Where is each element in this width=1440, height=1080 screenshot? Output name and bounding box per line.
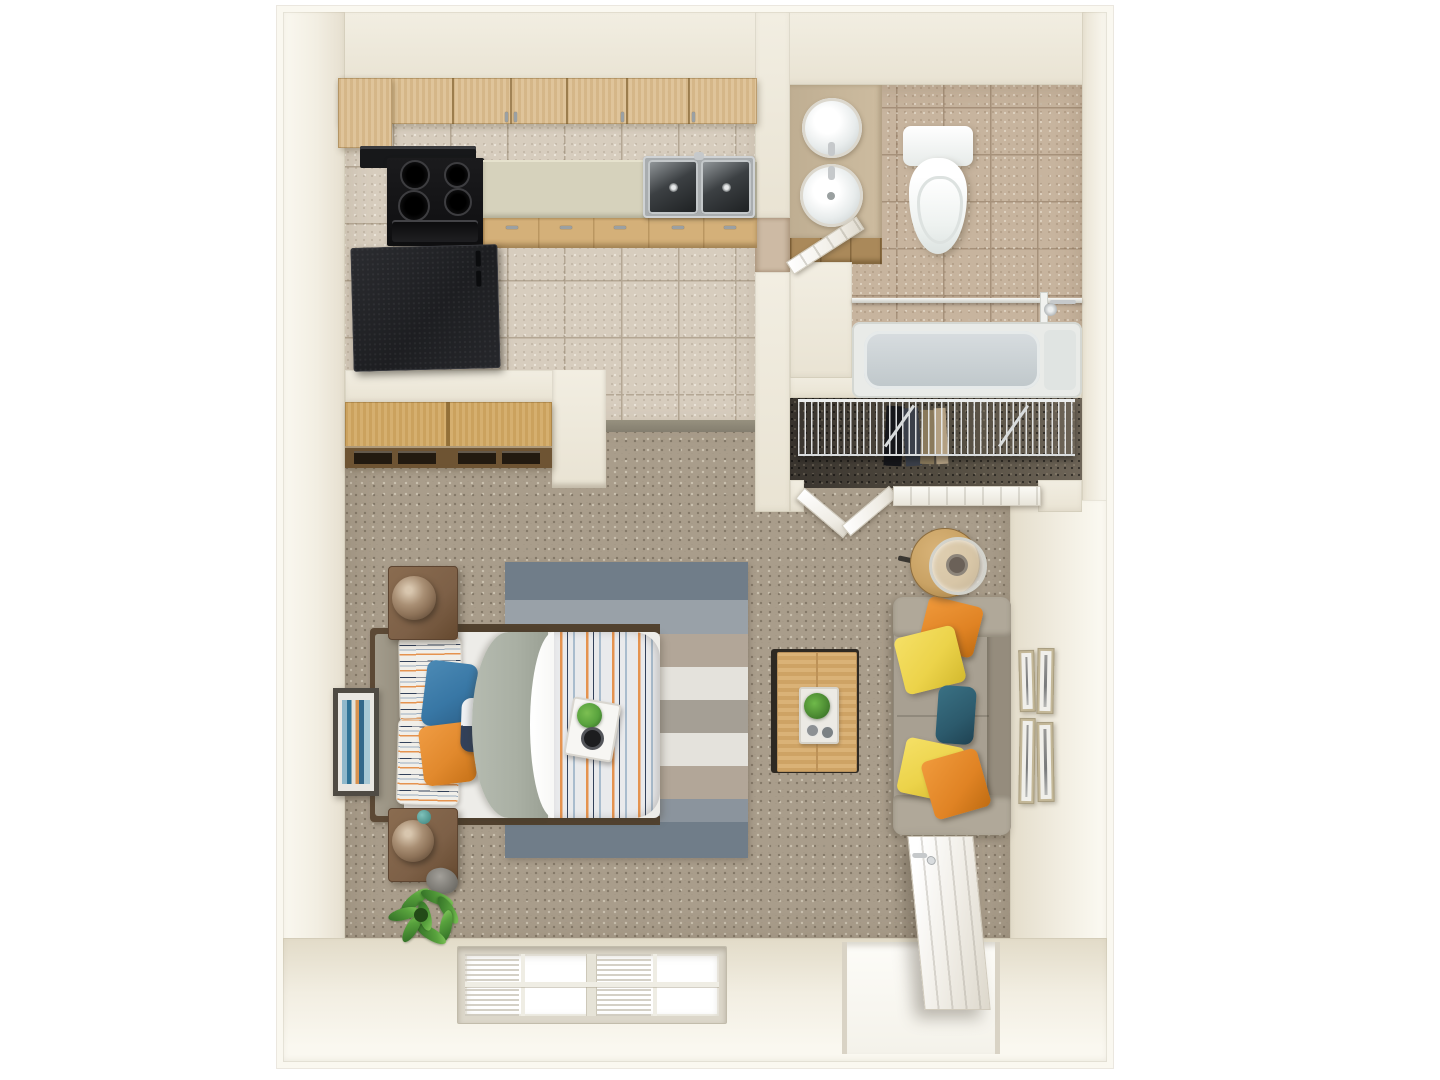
- teal-decor-ball: [417, 810, 431, 824]
- cabinet-handle: [621, 112, 624, 122]
- drawer-handle: [614, 226, 626, 229]
- tray-plant: [577, 703, 602, 728]
- table-lamp-lower: [392, 820, 434, 862]
- floor-plan: [0, 0, 1440, 1080]
- drawer-handle: [560, 226, 572, 229]
- wall-partition-kitchen-bath-lower: [755, 272, 790, 512]
- kitchen-threshold: [606, 420, 757, 432]
- sofa-pillow-teal: [935, 685, 977, 746]
- cabinet-divider: [510, 78, 512, 124]
- cabinet-divider: [566, 78, 568, 124]
- base-cabinets: [483, 218, 757, 248]
- upper-cabinet-corner: [338, 78, 392, 148]
- drawer-handle: [724, 226, 736, 229]
- vanity-sink-top: [802, 98, 862, 158]
- abstract-wall-art: [333, 688, 379, 796]
- wardrobe-drawer-slot: [398, 451, 436, 464]
- bathtub: [852, 322, 1082, 398]
- gallery-frame-3: [1018, 718, 1035, 804]
- coffee-table-plant: [804, 693, 830, 719]
- wall-right-bath: [1082, 12, 1107, 506]
- wall-closet-front-right: [1038, 480, 1082, 512]
- sink-basin-right: [701, 160, 751, 214]
- window: [457, 946, 727, 1024]
- wardrobe-drawer-slot: [458, 451, 496, 464]
- sink-drain: [722, 183, 731, 192]
- fridge-handle: [476, 251, 481, 267]
- burner: [398, 190, 430, 222]
- table-lamp-upper: [392, 576, 436, 620]
- tray-bowl: [821, 726, 834, 739]
- door-handle-knob: [926, 856, 936, 865]
- sink-drain: [827, 192, 835, 200]
- shower-head: [1044, 303, 1057, 316]
- drawer-handle: [672, 226, 684, 229]
- wall-tub-alcove: [790, 262, 852, 378]
- kitchen-faucet: [694, 152, 704, 160]
- window-muntin-horizontal: [465, 982, 719, 987]
- burner: [400, 160, 430, 190]
- burner: [444, 188, 472, 216]
- cabinet-divider: [688, 78, 690, 124]
- door-handle: [912, 853, 927, 858]
- oven-door: [392, 220, 478, 242]
- sink-drain: [669, 183, 678, 192]
- tub-basin: [864, 331, 1040, 389]
- tray-camera: [581, 727, 604, 750]
- closet-wire-shelf: [798, 399, 1075, 456]
- stove: [387, 158, 484, 246]
- faucet: [828, 142, 835, 156]
- wardrobe-drawer-slot: [502, 451, 540, 464]
- wall-alcove-stub: [552, 370, 606, 488]
- cabinet-divider: [452, 78, 454, 124]
- fridge-handle: [476, 271, 481, 287]
- plant-center: [414, 908, 428, 922]
- tub-seat: [1044, 330, 1076, 390]
- toilet-seat-ring: [917, 176, 963, 244]
- sink-basin-left: [648, 160, 698, 214]
- drawer-handle: [506, 226, 518, 229]
- gallery-frame-2: [1036, 648, 1054, 714]
- wall-partition-kitchen-bath-upper: [755, 12, 790, 218]
- cabinet-handle: [505, 112, 508, 122]
- cabinet-handle: [514, 112, 517, 122]
- burner: [444, 162, 470, 188]
- window-glass: [465, 954, 719, 1016]
- double-sink: [643, 156, 755, 218]
- bifold-door-closed-panel: [893, 486, 1041, 506]
- tray-bowl: [806, 724, 819, 737]
- bathroom-doorway: [755, 218, 790, 272]
- wall-top: [283, 12, 1107, 85]
- cabinet-handle: [692, 112, 695, 122]
- cabinet-divider: [626, 78, 628, 124]
- gallery-frame-1: [1018, 650, 1036, 712]
- refrigerator: [350, 244, 500, 372]
- side-table-lamp-hub: [946, 554, 968, 576]
- wardrobe-drawer-slot: [354, 451, 392, 464]
- faucet: [828, 166, 835, 180]
- gallery-frame-4: [1036, 722, 1054, 802]
- art-canvas: [342, 700, 370, 784]
- wardrobe: [345, 402, 552, 468]
- wall-left: [283, 12, 345, 1062]
